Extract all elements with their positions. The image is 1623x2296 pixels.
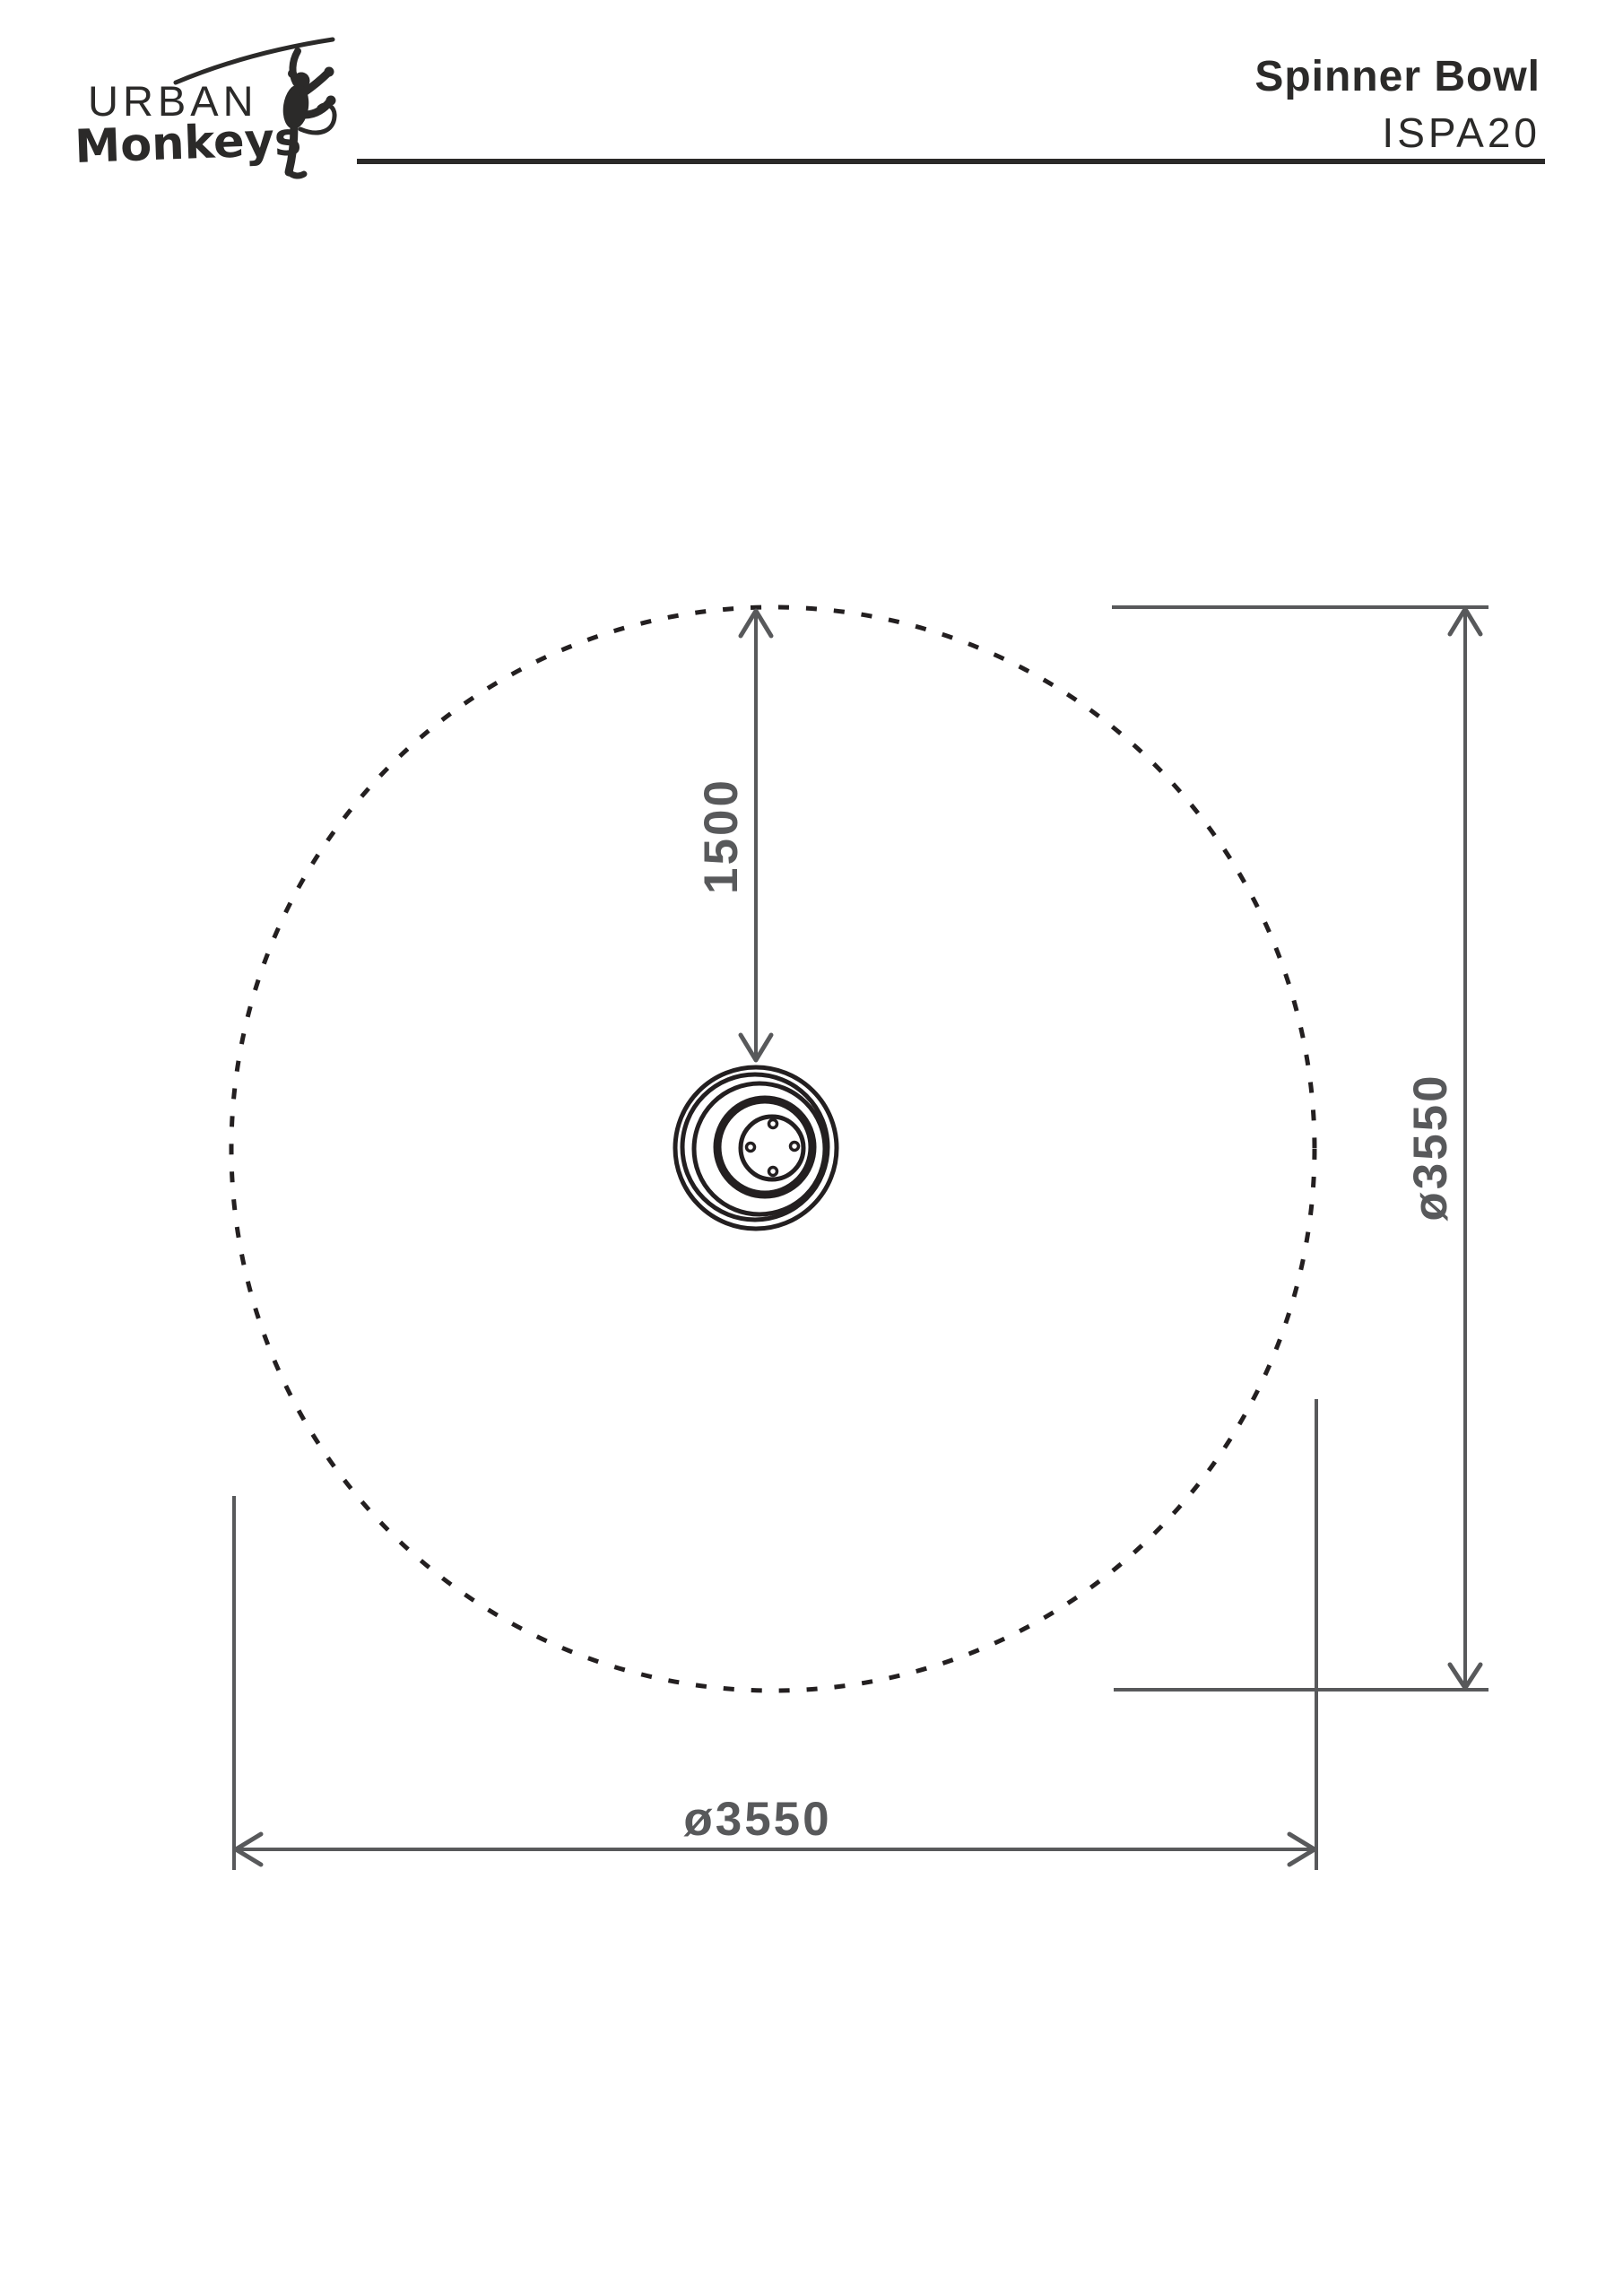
datasheet-page: { "colors":{ "ink":"#231f20", "dim":"#58… [0,0,1623,2296]
dim-diameter-bottom-label: ø3550 [683,1793,831,1846]
spinner-bowl-top-view [675,1067,837,1229]
dim-diameter-right-label: ø3550 [1404,1073,1457,1221]
safety-zone-dashed-circle [231,607,1315,1691]
dim-1500-label: 1500 [695,778,748,894]
hub-bolt-bottom [769,1168,777,1176]
hub-bolt-left [747,1144,755,1152]
dimension-1500-vertical: 1500 [695,611,771,1060]
dimension-diameter-right: ø3550 [1112,607,1488,1690]
hub-bolt-right [791,1143,799,1151]
hub-bolt-top [769,1120,777,1128]
dimension-diameter-bottom: ø3550 [234,1399,1316,1870]
technical-drawing: 1500 ø3550 ø3550 [0,0,1623,2296]
